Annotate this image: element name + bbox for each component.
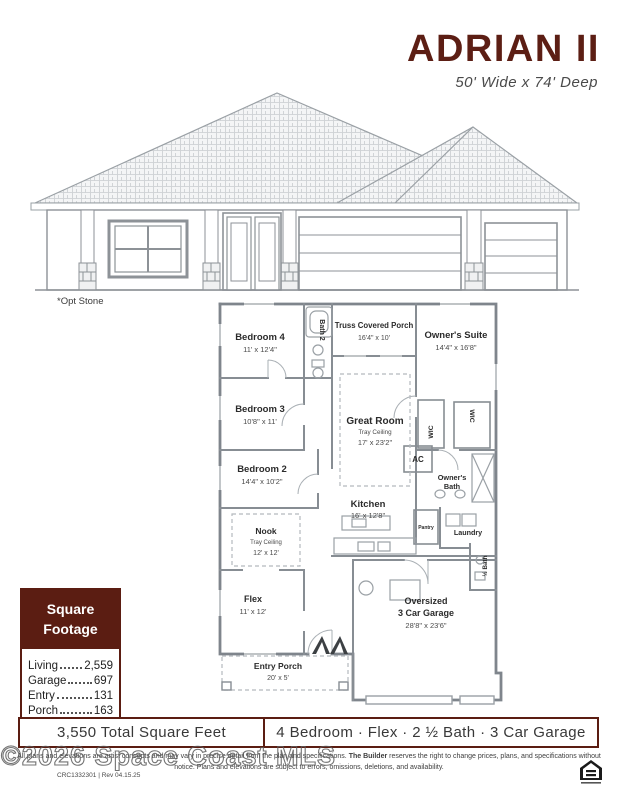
room-bedroom3: Bedroom 3 10'8" x 11' bbox=[235, 404, 285, 426]
svg-text:14'4" x 16'8": 14'4" x 16'8" bbox=[435, 343, 476, 352]
room-great-room: Great Room Tray Ceiling 17' x 23'2" bbox=[346, 416, 403, 447]
svg-text:11' x 12'4": 11' x 12'4" bbox=[243, 345, 277, 354]
svg-text:Bedroom 4: Bedroom 4 bbox=[235, 332, 285, 343]
svg-text:Tray Ceiling: Tray Ceiling bbox=[358, 429, 392, 436]
elevation-drawing: *Opt Stone bbox=[25, 85, 590, 307]
sf-row-garage: Garage697 bbox=[28, 675, 113, 687]
fascia bbox=[31, 203, 579, 210]
room-ac: AC bbox=[412, 455, 424, 464]
svg-text:20' x 5': 20' x 5' bbox=[267, 675, 289, 682]
room-flex: Flex 11' x 12' bbox=[240, 594, 267, 616]
equal-housing-icon bbox=[580, 760, 602, 786]
sf-row-entry: Entry131 bbox=[28, 690, 113, 702]
room-laundry: Laundry bbox=[454, 528, 482, 537]
svg-text:Bath: Bath bbox=[444, 482, 460, 491]
roof bbox=[35, 93, 577, 203]
entry-door bbox=[223, 213, 281, 290]
svg-text:Owner's: Owner's bbox=[438, 473, 467, 482]
svg-text:Nook: Nook bbox=[255, 526, 277, 536]
svg-text:16' x 12'8": 16' x 12'8" bbox=[351, 511, 386, 520]
room-garage: Oversized 3 Car Garage 28'8" x 23'6" bbox=[398, 596, 454, 630]
svg-text:Oversized: Oversized bbox=[404, 596, 447, 606]
svg-text:Kitchen: Kitchen bbox=[351, 499, 386, 510]
garage-door-openings bbox=[366, 696, 494, 704]
svg-text:Entry Porch: Entry Porch bbox=[254, 661, 302, 671]
page-title: ADRIAN II bbox=[407, 28, 600, 71]
mls-watermark: ©2026 Space Coast MLS bbox=[1, 741, 336, 772]
svg-text:3 Car Garage: 3 Car Garage bbox=[398, 608, 454, 618]
svg-text:Flex: Flex bbox=[244, 594, 262, 604]
svg-text:14'4" x 10'2": 14'4" x 10'2" bbox=[241, 477, 282, 486]
room-pantry: Pantry bbox=[418, 525, 434, 531]
svg-text:Owner's Suite: Owner's Suite bbox=[425, 330, 488, 341]
room-owners-bath: Owner's Bath bbox=[438, 473, 467, 491]
room-truss-porch: Truss Covered Porch 16'4" x 10' bbox=[335, 321, 414, 342]
svg-text:Bedroom 3: Bedroom 3 bbox=[235, 404, 285, 415]
room-wic-right: WIC bbox=[468, 409, 475, 422]
opt-stone-caption: *Opt Stone bbox=[57, 296, 103, 307]
svg-text:Tray Ceiling: Tray Ceiling bbox=[250, 540, 282, 546]
svg-text:Truss Covered Porch: Truss Covered Porch bbox=[335, 321, 414, 330]
license-number: CRC1332301 | Rev 04.15.25 bbox=[57, 772, 140, 779]
svg-text:17' x 23'2": 17' x 23'2" bbox=[358, 438, 393, 447]
svg-text:11' x 12': 11' x 12' bbox=[240, 607, 267, 616]
square-footage-box: Square Footage Living2,559 Garage697 Ent… bbox=[20, 588, 121, 732]
room-entry-porch: Entry Porch 20' x 5' bbox=[254, 661, 302, 682]
square-footage-title: Square Footage bbox=[22, 590, 119, 649]
svg-text:Bedroom 2: Bedroom 2 bbox=[237, 464, 287, 475]
sf-row-porch: Porch163 bbox=[28, 705, 113, 717]
svg-text:28'8" x 23'6": 28'8" x 23'6" bbox=[405, 621, 446, 630]
svg-text:16'4" x 10': 16'4" x 10' bbox=[358, 335, 390, 342]
builder-bold: The Builder bbox=[349, 753, 388, 760]
room-bath2: Bath 2 bbox=[318, 319, 325, 341]
porch-posts bbox=[222, 682, 348, 690]
room-nook: Nook Tray Ceiling 12' x 12' bbox=[250, 526, 282, 557]
svg-text:Great Room: Great Room bbox=[346, 416, 403, 427]
room-wic-left: WIC bbox=[428, 425, 435, 438]
floor-plan-sheet: ADRIAN II 50' Wide x 74' Deep bbox=[0, 0, 618, 800]
room-owners-suite: Owner's Suite 14'4" x 16'8" bbox=[425, 330, 488, 352]
room-half-bath: ½ Bath bbox=[481, 555, 489, 576]
sf-row-living: Living2,559 bbox=[28, 660, 113, 672]
svg-text:12' x 12': 12' x 12' bbox=[253, 550, 279, 557]
svg-text:10'8" x 11': 10'8" x 11' bbox=[243, 417, 277, 426]
room-bedroom4: Bedroom 4 11' x 12'4" bbox=[235, 332, 285, 354]
floor-plan: Bedroom 4 11' x 12'4" Bath 2 Truss Cover… bbox=[208, 298, 508, 716]
entry-chevrons bbox=[312, 636, 348, 654]
room-kitchen: Kitchen 16' x 12'8" bbox=[351, 499, 386, 520]
room-bedroom2: Bedroom 2 14'4" x 10'2" bbox=[237, 464, 287, 486]
